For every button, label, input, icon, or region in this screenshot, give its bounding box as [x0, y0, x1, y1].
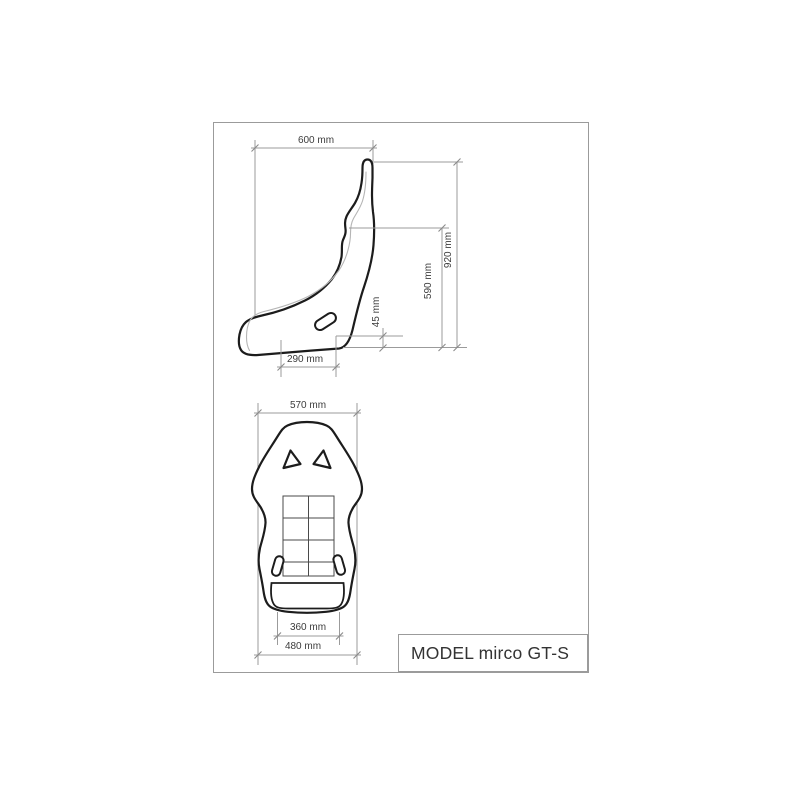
- page: { "drawing": { "title_block": { "model_l…: [0, 0, 800, 800]
- title-block: MODEL mirco GT-S: [398, 634, 588, 672]
- dim-label-base-lip-height: 45 mm: [371, 280, 383, 344]
- model-name-label: MODEL mirco GT-S: [411, 643, 569, 664]
- seat-side-view: [239, 160, 374, 356]
- dim-label-overall-depth: 600 mm: [284, 135, 348, 147]
- technical-drawing-canvas: [0, 0, 800, 800]
- dim-label-shoulder-width: 570 mm: [276, 400, 340, 412]
- dim-label-overall-height: 920 mm: [443, 218, 455, 282]
- dim-label-cushion-width: 360 mm: [276, 622, 340, 634]
- dim-label-backrest-height: 590 mm: [423, 249, 435, 313]
- dim-label-base-width: 480 mm: [271, 641, 335, 653]
- seat-side-outline: [239, 160, 374, 356]
- seat-cushion-pad: [271, 583, 344, 609]
- seat-front-view: [252, 422, 362, 613]
- dim-label-cushion-depth: 290 mm: [273, 354, 337, 366]
